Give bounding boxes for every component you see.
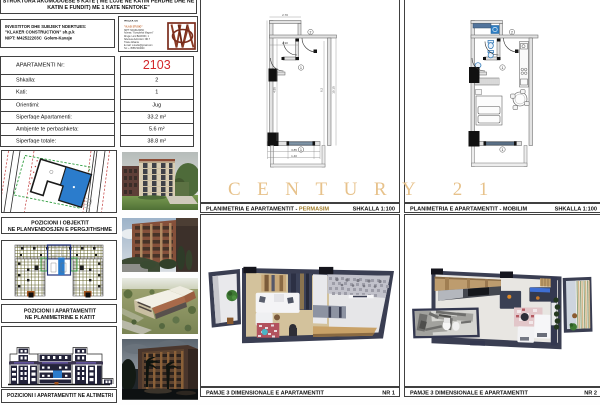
svg-text:1.40: 1.40 (291, 154, 297, 158)
svg-text:2: 2 (310, 30, 312, 34)
svg-text:2: 2 (511, 30, 513, 34)
svg-text:1: 1 (502, 66, 504, 70)
svg-text:3.85: 3.85 (291, 148, 297, 152)
svg-text:1: 1 (300, 66, 302, 70)
svg-text:2.70: 2.70 (282, 13, 288, 17)
svg-text:1: 1 (502, 148, 504, 152)
svg-text:6.2: 6.2 (320, 88, 324, 93)
svg-text:1: 1 (300, 148, 302, 152)
svg-text:4.55: 4.55 (273, 87, 277, 93)
svg-text:10.15: 10.15 (332, 86, 336, 94)
svg-text:2.90: 2.90 (282, 41, 288, 45)
